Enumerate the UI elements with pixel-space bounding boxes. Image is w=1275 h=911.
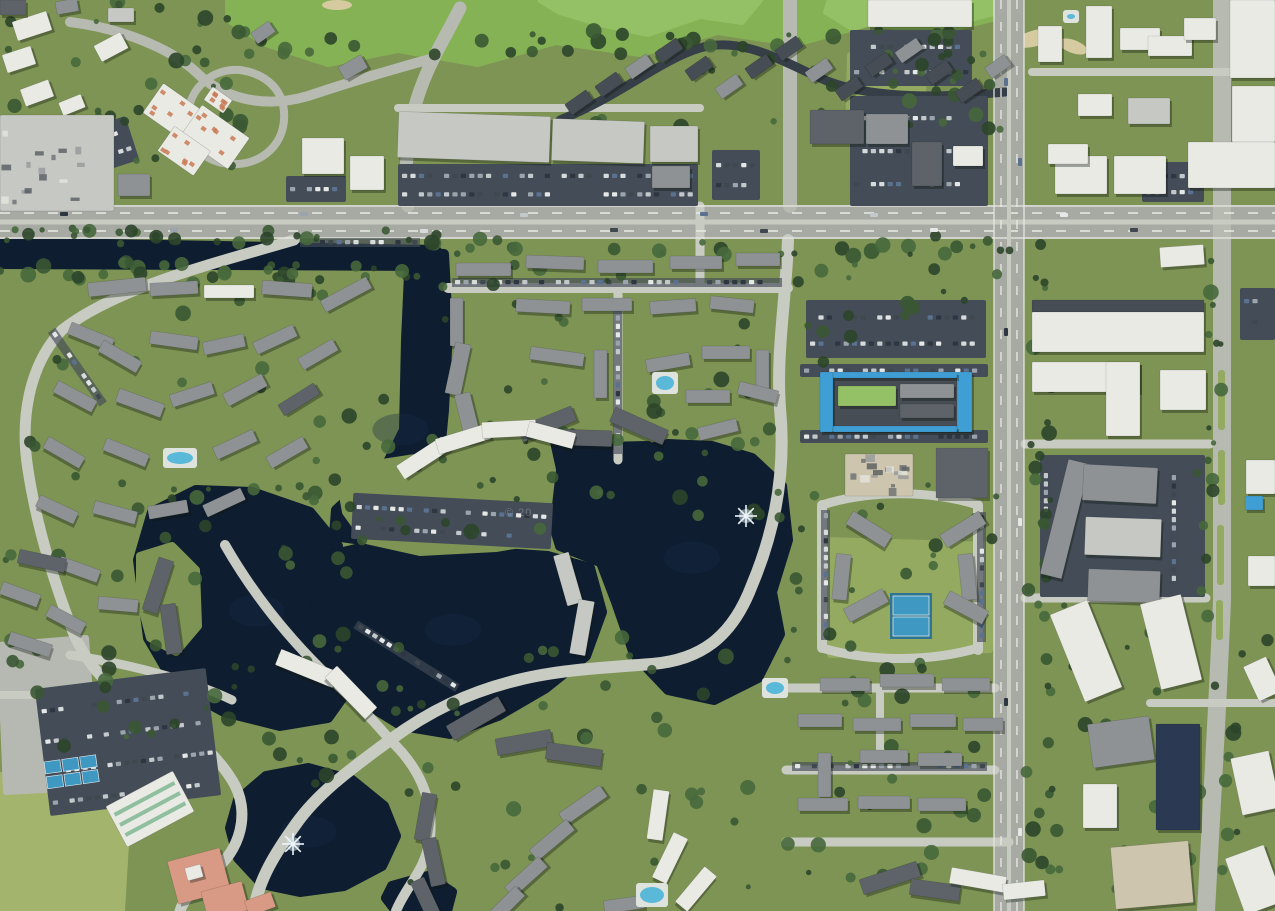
tree (1203, 284, 1219, 300)
parked-car (207, 750, 213, 755)
tree (692, 510, 703, 521)
tree (190, 490, 205, 505)
tree (117, 240, 124, 247)
tree (704, 39, 718, 53)
tree (213, 238, 220, 245)
tree (492, 235, 502, 245)
tree (313, 634, 327, 648)
tree (463, 524, 479, 540)
tree (795, 587, 803, 595)
tree (1035, 239, 1046, 250)
tree (982, 121, 996, 135)
tree (429, 49, 441, 61)
parked-car (938, 435, 943, 439)
vehicle (60, 212, 68, 216)
tree (846, 275, 851, 280)
parked-car (478, 192, 483, 196)
parked-car (980, 764, 985, 768)
parked-car (812, 764, 817, 768)
tree (505, 47, 516, 58)
vehicle (1018, 828, 1022, 836)
tree (1218, 341, 1224, 347)
blue-roof-building (1245, 496, 1263, 510)
parked-car (671, 192, 676, 196)
parked-car (648, 280, 653, 284)
debris (77, 163, 85, 167)
office-building (302, 138, 344, 174)
parked-car (199, 751, 205, 756)
parked-car (162, 725, 168, 730)
tree (1034, 808, 1045, 819)
tree (171, 486, 177, 492)
parked-car (427, 174, 432, 178)
parked-car (432, 509, 437, 513)
tree (159, 260, 170, 271)
sport-courts (82, 770, 100, 784)
apartment-building (150, 281, 199, 296)
parked-car (503, 174, 508, 178)
debris (35, 151, 44, 155)
parked-car (913, 116, 918, 120)
parked-car (402, 192, 407, 196)
tree (287, 268, 299, 280)
tree (1035, 856, 1049, 870)
tree (730, 818, 738, 826)
tree (336, 627, 351, 642)
parked-car (749, 280, 754, 284)
parked-car (835, 342, 840, 346)
tree (120, 117, 129, 126)
warehouse (868, 0, 972, 27)
parking-lot (806, 300, 986, 358)
tree (377, 680, 389, 692)
tree (22, 228, 35, 241)
navy-roof-building (1156, 724, 1200, 830)
parked-car (407, 507, 412, 511)
parked-car (541, 514, 546, 518)
tree (844, 330, 858, 344)
tree (4, 237, 10, 243)
parked-car (507, 513, 512, 517)
parked-car (854, 764, 859, 768)
tree (888, 79, 898, 89)
tree (313, 415, 325, 427)
tree (1153, 687, 1162, 696)
parked-car (564, 280, 569, 284)
parked-car (877, 342, 882, 346)
tree (371, 265, 377, 271)
apartment-building (853, 718, 901, 731)
apartment-building (1038, 26, 1062, 62)
apartment-building (1159, 244, 1204, 267)
clubhouse (936, 448, 988, 498)
tree (7, 99, 21, 113)
parked-car (616, 366, 620, 371)
tree (331, 520, 341, 530)
tree (786, 32, 791, 37)
parked-car (1172, 492, 1176, 497)
parked-car (157, 756, 163, 761)
parked-car (516, 513, 521, 517)
tree (334, 646, 341, 653)
tree (615, 630, 629, 644)
tree (1043, 737, 1054, 748)
tree (297, 757, 303, 763)
parked-car (186, 784, 192, 789)
tree (345, 501, 356, 512)
median-strip (1218, 370, 1225, 430)
warehouse (1188, 142, 1275, 188)
tree (915, 58, 928, 71)
tree (71, 472, 80, 481)
parked-car (879, 45, 884, 49)
parked-car (970, 315, 975, 319)
tree (329, 473, 342, 486)
parked-car (69, 798, 75, 803)
tree (849, 587, 855, 593)
parked-car (103, 794, 109, 799)
tree (12, 226, 19, 233)
parked-car (824, 622, 828, 627)
parked-car (116, 762, 122, 767)
tree (1044, 419, 1051, 426)
swimming-pool (656, 376, 674, 390)
parked-car (824, 580, 828, 585)
parked-car (194, 783, 200, 788)
parked-car (888, 435, 893, 439)
debris (861, 459, 865, 463)
parked-car (506, 533, 511, 537)
tree (305, 47, 314, 56)
apartment-building (880, 674, 934, 687)
parked-car (804, 435, 809, 439)
parked-car (1172, 509, 1176, 514)
tree (562, 45, 574, 57)
tree (970, 243, 976, 249)
tree (938, 118, 947, 127)
parked-car (896, 435, 901, 439)
tree (943, 49, 952, 58)
tree (941, 289, 947, 295)
parked-car (1244, 299, 1249, 303)
tennis-courts (893, 617, 929, 636)
parked-car (871, 45, 876, 49)
tree (95, 108, 102, 115)
tree (174, 238, 181, 245)
parked-car (616, 341, 620, 346)
parked-car (631, 280, 636, 284)
parked-car (78, 797, 84, 802)
tree (968, 741, 980, 753)
tree (996, 126, 1003, 133)
tree (1040, 278, 1048, 286)
warehouse (1232, 86, 1275, 142)
parked-car (132, 759, 138, 764)
parked-car (854, 70, 859, 74)
parked-car (980, 565, 984, 570)
parked-car (324, 187, 329, 191)
parked-car (452, 192, 457, 196)
parked-car (482, 511, 487, 515)
vehicle (700, 212, 708, 216)
tree (286, 560, 295, 569)
blue-trim-building (820, 372, 833, 432)
parking-lot (712, 150, 760, 200)
tree (475, 34, 489, 48)
debris (889, 488, 897, 496)
parked-car (545, 174, 550, 178)
tree (616, 28, 629, 41)
tree (94, 19, 99, 24)
parked-car (938, 45, 943, 49)
tree (331, 551, 345, 565)
tree (930, 552, 936, 558)
parked-car (741, 183, 746, 187)
tree (740, 780, 755, 795)
parked-car (688, 192, 693, 196)
debris (26, 162, 30, 168)
tree (514, 496, 520, 502)
tree (30, 685, 44, 699)
parked-car (724, 280, 729, 284)
tree (986, 533, 997, 544)
tree (118, 479, 126, 487)
parked-car (412, 240, 417, 244)
parked-car (904, 70, 909, 74)
parking-row (613, 304, 622, 454)
tree (672, 489, 688, 505)
tree (699, 239, 706, 246)
parked-car (398, 507, 403, 511)
tree (376, 516, 381, 521)
parked-car (896, 182, 901, 186)
parked-car (452, 174, 457, 178)
debris (59, 179, 67, 182)
tree (407, 706, 413, 712)
parked-car (824, 555, 828, 560)
parked-car (724, 163, 729, 167)
swimming-pool (640, 887, 664, 903)
parked-car (980, 549, 984, 554)
tree (713, 372, 729, 388)
tree (977, 788, 991, 802)
tree (1193, 469, 1201, 477)
warehouse (1160, 370, 1206, 410)
tree (731, 437, 745, 451)
apartment-building (1087, 716, 1155, 768)
apartment-building (702, 346, 750, 359)
tree (57, 739, 71, 753)
warehouse (1106, 362, 1140, 436)
parked-car (382, 506, 387, 510)
tree (6, 655, 18, 667)
parked-car (707, 280, 712, 284)
parked-car (486, 174, 491, 178)
tree (1033, 275, 1039, 281)
tree (1049, 786, 1056, 793)
apartment-building (1086, 6, 1112, 58)
parked-car (149, 757, 155, 762)
parked-car (936, 342, 941, 346)
parked-car (646, 192, 651, 196)
tree (1221, 828, 1235, 842)
parked-car (58, 707, 64, 712)
tree (1039, 518, 1051, 530)
vehicle (1018, 518, 1022, 526)
tree (925, 482, 931, 488)
parked-car (961, 315, 966, 319)
parked-car (478, 174, 483, 178)
tree (1028, 461, 1042, 475)
parked-car (1044, 490, 1048, 495)
tree (220, 77, 233, 90)
parking-row (821, 510, 830, 640)
parked-car (353, 240, 358, 244)
median-strip (1218, 450, 1225, 505)
garden-building (845, 454, 913, 496)
tree (938, 247, 952, 261)
tree (900, 310, 910, 320)
vehicle (520, 213, 528, 217)
parked-car (732, 280, 737, 284)
tree (315, 275, 324, 284)
vehicle (170, 228, 178, 232)
tree (902, 93, 917, 108)
tree (534, 523, 546, 535)
tree (188, 572, 202, 586)
tree (278, 42, 292, 56)
parked-car (646, 174, 651, 178)
parked-car (431, 529, 436, 533)
vehicle (420, 229, 428, 233)
parked-car (620, 174, 625, 178)
debris (850, 473, 856, 479)
tree (672, 429, 679, 436)
tree (487, 278, 500, 291)
parked-car (87, 734, 93, 739)
tree (1238, 650, 1246, 658)
tree (685, 788, 698, 801)
parked-car (141, 696, 147, 701)
warehouse (1032, 312, 1204, 352)
parked-car (838, 435, 843, 439)
tree (508, 242, 522, 256)
apartment-building (818, 753, 831, 797)
strip-mall (397, 111, 551, 162)
tree (133, 105, 143, 115)
tree (175, 257, 189, 271)
sport-courts (64, 772, 82, 786)
parked-car (623, 280, 628, 284)
strip-mall (551, 118, 644, 163)
tree (652, 243, 666, 257)
debris (59, 149, 67, 153)
parked-car (911, 342, 916, 346)
tree (1027, 441, 1034, 448)
tree (348, 40, 360, 52)
parked-car (520, 174, 525, 178)
tree (605, 278, 610, 283)
parked-car (45, 739, 51, 744)
parked-car (119, 792, 125, 797)
tree (115, 228, 123, 236)
tree (852, 262, 858, 268)
parked-car (337, 240, 342, 244)
tree (473, 232, 487, 246)
parked-car (733, 163, 738, 167)
tree (324, 730, 339, 745)
tree (160, 532, 172, 544)
tree (260, 232, 274, 246)
apartment-building (858, 796, 910, 809)
apartment-building (526, 255, 584, 270)
parked-car (1172, 525, 1176, 530)
apartment-building (1184, 18, 1216, 40)
tree (798, 525, 805, 532)
debris (71, 198, 80, 201)
tree (206, 487, 211, 492)
parked-car (972, 435, 977, 439)
debris (39, 168, 46, 174)
tree (527, 448, 540, 461)
parked-car (536, 192, 541, 196)
tree (1210, 302, 1216, 308)
tree (685, 427, 698, 440)
tree (125, 224, 138, 237)
tree (770, 118, 776, 124)
tree (1197, 586, 1206, 595)
parked-car (439, 530, 444, 534)
tree (248, 665, 255, 672)
parked-car (616, 315, 620, 320)
tree (924, 845, 939, 860)
parked-car (556, 280, 561, 284)
apartment-building (736, 253, 780, 266)
parked-car (499, 512, 504, 516)
parked-car (862, 149, 867, 153)
tree (314, 234, 320, 240)
tree (197, 10, 213, 26)
parked-car (616, 383, 620, 388)
tree (900, 568, 912, 580)
tree (541, 378, 548, 385)
parked-car (390, 507, 395, 511)
sport-courts (62, 757, 80, 771)
tree (548, 646, 559, 657)
parked-car (637, 192, 642, 196)
parked-car (824, 530, 828, 535)
parked-car (824, 563, 828, 568)
parked-car (818, 342, 823, 346)
tree (961, 297, 968, 304)
parked-car (604, 192, 609, 196)
tree (647, 665, 656, 674)
parked-car (158, 694, 164, 699)
apartment-building (963, 718, 1003, 731)
median-strip (1216, 600, 1223, 640)
tree (790, 572, 803, 585)
strip-mall (650, 126, 698, 162)
tree (702, 450, 709, 457)
parked-car (616, 391, 620, 396)
satellite-map-view[interactable]: © 20 (0, 0, 1275, 911)
parked-car (111, 793, 117, 798)
parked-car (410, 174, 415, 178)
parked-car (503, 192, 508, 196)
tree (400, 525, 410, 535)
tree (309, 495, 319, 505)
apartment-building (942, 678, 990, 691)
